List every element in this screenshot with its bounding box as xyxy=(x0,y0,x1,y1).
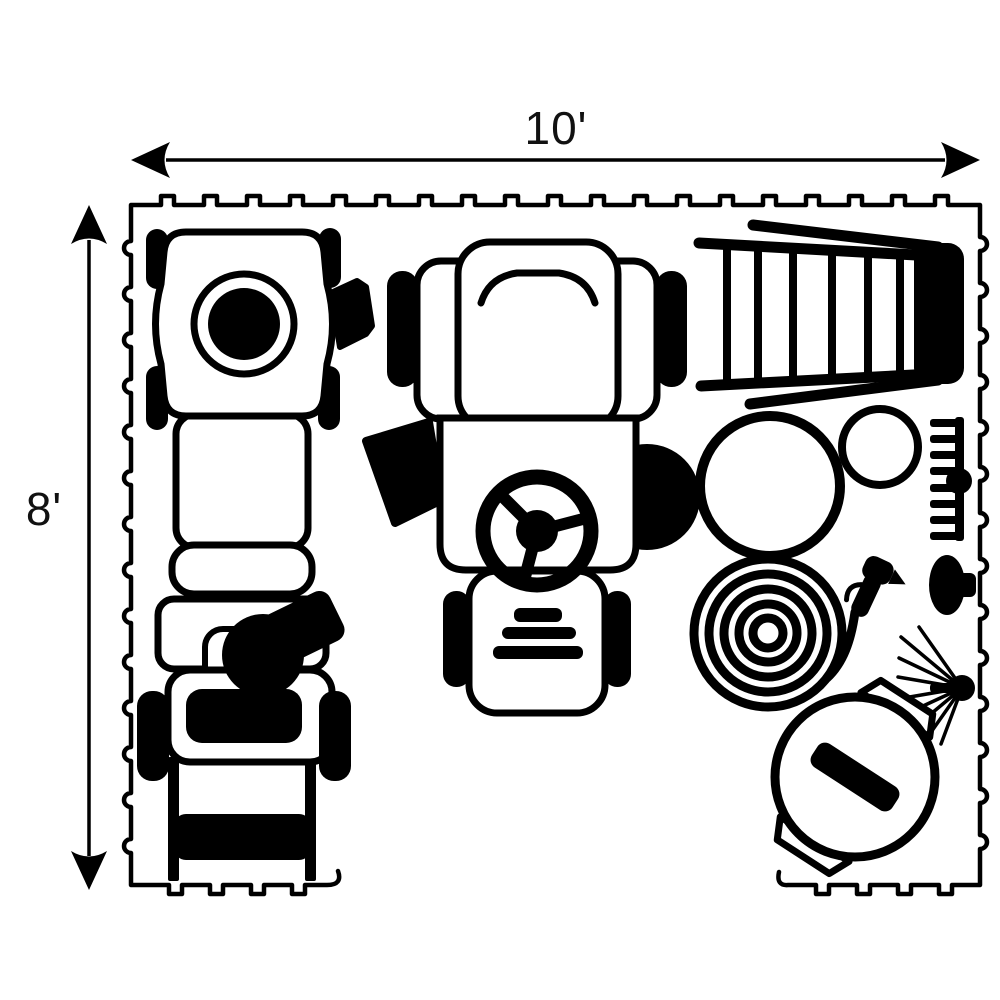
blower-handle-grip xyxy=(174,814,311,860)
garden-rake xyxy=(930,417,972,541)
width-dimension: 10' xyxy=(131,102,980,178)
mower-discharge-chute xyxy=(331,281,372,347)
small-lid xyxy=(842,409,918,485)
mower-handle-grip xyxy=(172,545,312,594)
arrow-down-icon xyxy=(71,851,107,890)
ladder xyxy=(699,225,964,404)
height-dimension-label: 8' xyxy=(26,483,62,535)
diagram-canvas: 10' 8' xyxy=(0,0,1000,1000)
ladder-top-cap xyxy=(914,243,964,384)
mower-engine xyxy=(208,288,280,360)
arrow-right-icon xyxy=(941,142,980,178)
arrow-up-icon xyxy=(71,205,107,244)
dustpan xyxy=(929,555,976,615)
mower-handle xyxy=(176,414,308,548)
arrow-left-icon xyxy=(131,142,170,178)
tractor-discharge-chute xyxy=(366,422,442,523)
height-dimension: 8' xyxy=(26,205,107,890)
push-mower xyxy=(146,228,372,594)
large-lid xyxy=(700,416,840,556)
floor-plan-diagram: 10' 8' xyxy=(0,0,1000,1000)
snow-blower xyxy=(137,587,351,881)
garden-hose xyxy=(694,559,855,707)
blower-engine xyxy=(186,689,302,743)
riding-mower xyxy=(366,242,700,713)
width-dimension-label: 10' xyxy=(525,102,588,154)
